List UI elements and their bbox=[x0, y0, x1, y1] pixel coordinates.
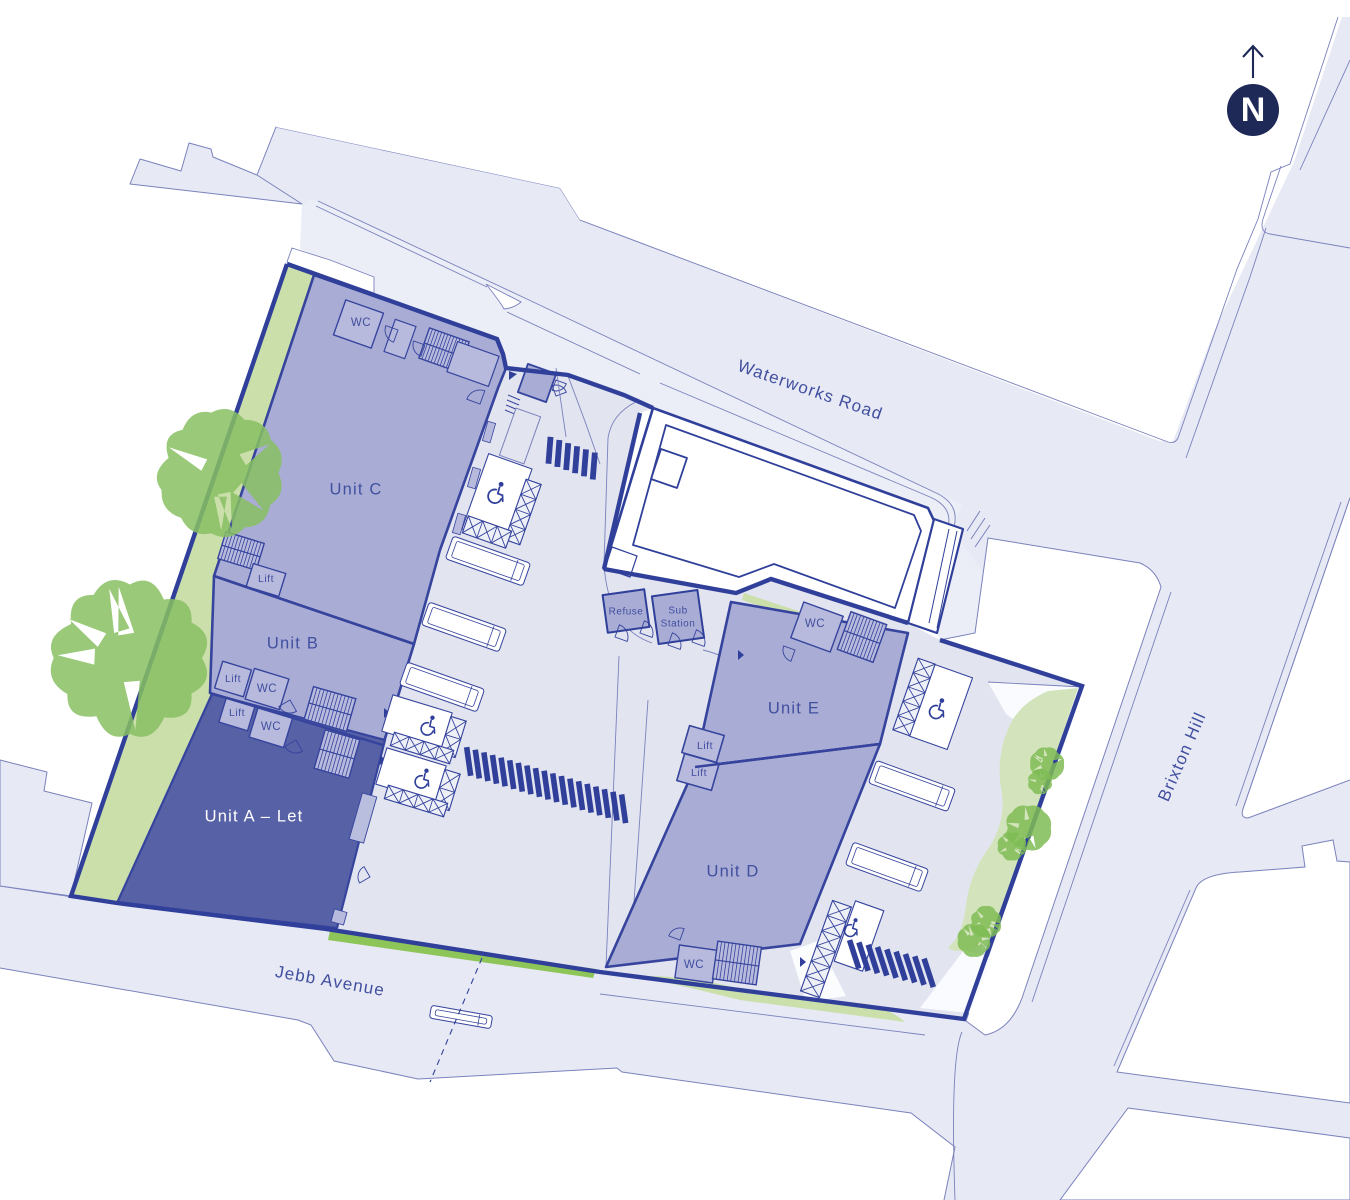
svg-text:Station: Station bbox=[661, 619, 696, 630]
svg-text:Unit D: Unit D bbox=[706, 862, 759, 880]
svg-text:Lift: Lift bbox=[229, 707, 245, 719]
svg-text:Unit B: Unit B bbox=[267, 634, 319, 652]
svg-text:WC: WC bbox=[257, 683, 277, 695]
svg-text:WC: WC bbox=[351, 317, 371, 329]
svg-text:Lift: Lift bbox=[258, 573, 274, 585]
svg-text:Unit E: Unit E bbox=[768, 699, 820, 717]
svg-text:Lift: Lift bbox=[225, 673, 241, 685]
svg-text:WC: WC bbox=[805, 618, 825, 630]
svg-text:Lift: Lift bbox=[691, 767, 707, 779]
svg-text:Lift: Lift bbox=[697, 740, 713, 752]
svg-text:Unit A – Let: Unit A – Let bbox=[205, 807, 304, 825]
svg-text:Sub: Sub bbox=[668, 606, 687, 617]
svg-text:N: N bbox=[1241, 91, 1266, 129]
svg-text:WC: WC bbox=[684, 959, 704, 971]
svg-text:Refuse: Refuse bbox=[609, 607, 644, 618]
svg-text:WC: WC bbox=[261, 721, 281, 733]
svg-text:Unit C: Unit C bbox=[329, 480, 382, 498]
